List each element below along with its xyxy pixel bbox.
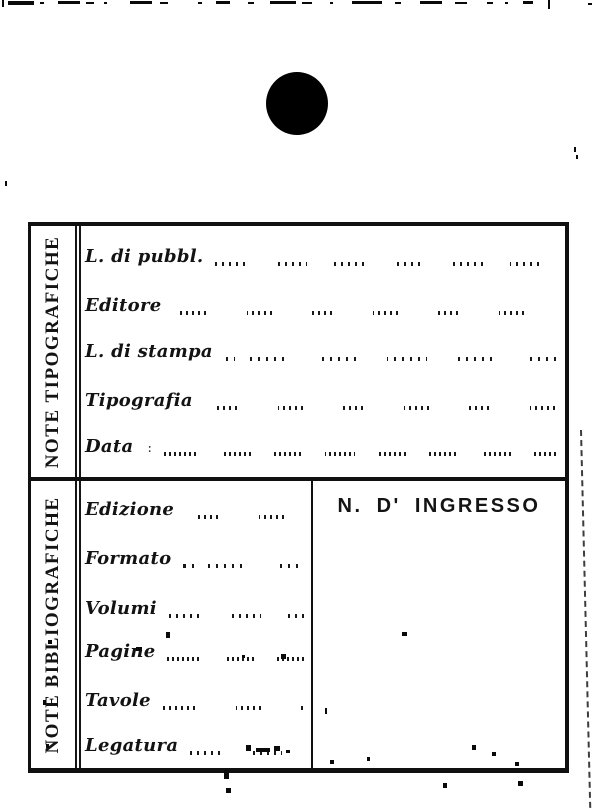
field-row-l-di-stampa: L. di stampa [85, 340, 557, 364]
field-label: L. di pubbl. [85, 245, 203, 269]
fill-in-dotted-line [164, 452, 557, 456]
section-note-bibliografiche: NOTE BIBLIOGRAFICHE Edizione Formato Vol… [31, 481, 565, 768]
scan-noise [576, 155, 578, 159]
field-row-legatura: Legatura [85, 734, 304, 758]
scan-noise [48, 640, 52, 644]
scan-noise [256, 748, 270, 752]
field-row-volumi: Volumi [85, 597, 304, 621]
section-side-label: NOTE BIBLIOGRAFICHE [42, 496, 64, 753]
scan-noise [281, 654, 286, 659]
scan-noise [248, 2, 254, 4]
field-label: Legatura [85, 734, 178, 758]
field-label: Tipografia [85, 389, 193, 413]
scan-noise [420, 1, 442, 4]
scan-noise [325, 708, 327, 714]
scan-noise [40, 2, 44, 4]
field-row-edizione: Edizione [85, 498, 304, 522]
fill-in-dotted-line [169, 614, 304, 618]
scan-noise [226, 788, 231, 793]
field-row-formato: Formato [85, 547, 304, 571]
scan-noise [302, 2, 312, 4]
scan-noise [367, 757, 370, 761]
fill-in-dotted-line [174, 311, 558, 315]
side-label-column: NOTE BIBLIOGRAFICHE [31, 481, 81, 768]
scan-noise [505, 2, 508, 4]
catalog-card: NOTE TIPOGRAFICHE L. di pubbl. Editore L… [28, 222, 569, 773]
scan-noise [518, 781, 523, 786]
punch-hole [266, 72, 328, 135]
scan-noise [270, 1, 296, 4]
ingress-panel: N. D' INGRESSO [313, 481, 565, 768]
field-label: L. di stampa [85, 340, 213, 364]
scan-noise [43, 700, 46, 705]
scan-noise [160, 2, 168, 4]
scan-noise [330, 2, 333, 4]
scan-noise [286, 750, 290, 753]
scan-noise [352, 1, 382, 4]
scan-noise [274, 746, 280, 751]
scan-noise [588, 3, 592, 5]
field-label: Editore [85, 294, 162, 318]
scan-noise [5, 181, 7, 186]
scan-artifact-line [580, 430, 591, 808]
field-label: Pagine [85, 640, 155, 664]
section-note-tipografiche: NOTE TIPOGRAFICHE L. di pubbl. Editore L… [31, 226, 565, 481]
scan-noise [86, 2, 94, 4]
fill-in-dotted-line [183, 564, 304, 568]
fill-in-dotted-line [163, 706, 304, 710]
field-row-l-di-pubbl: L. di pubbl. [85, 245, 557, 269]
fill-in-dotted-line [186, 515, 304, 519]
scan-noise [216, 1, 230, 4]
scan-noise [58, 1, 80, 4]
scan-noise [242, 655, 245, 658]
scan-noise [104, 2, 107, 4]
section-side-label: NOTE TIPOGRAFICHE [42, 235, 64, 468]
scan-noise [487, 2, 493, 4]
field-label: Volumi [85, 597, 157, 621]
scan-noise [198, 2, 202, 4]
scan-noise [395, 2, 401, 4]
scan-noise [548, 0, 550, 9]
side-label-column: NOTE TIPOGRAFICHE [31, 226, 81, 477]
scan-noise [166, 632, 170, 638]
field-row-pagine: Pagine [85, 640, 304, 664]
field-label: Edizione [85, 498, 174, 522]
fill-in-dotted-line [215, 262, 557, 266]
scan-noise [136, 647, 142, 651]
scan-noise [472, 745, 476, 750]
scan-noise [492, 752, 496, 756]
scan-noise [455, 2, 467, 4]
field-row-editore: Editore [85, 294, 557, 318]
scan-noise [130, 1, 152, 4]
scan-noise [8, 1, 34, 5]
fill-in-dotted-line [205, 406, 557, 410]
scan-noise [224, 770, 229, 779]
fill-in-dotted-line [225, 357, 557, 361]
scan-noise [574, 147, 576, 152]
scan-noise [443, 783, 447, 788]
scan-noise [523, 1, 533, 4]
field-separator: : [147, 437, 151, 461]
scan-noise [246, 745, 251, 751]
scan-noise [515, 762, 519, 766]
field-label: Tavole [85, 689, 151, 713]
scan-noise [2, 0, 4, 7]
scan-noise [402, 632, 407, 636]
field-row-data: Data : [85, 435, 557, 459]
ingress-panel-title: N. D' INGRESSO [313, 495, 565, 518]
scan-noise [330, 760, 334, 764]
field-label: Data [85, 435, 133, 459]
field-row-tavole: Tavole [85, 689, 304, 713]
scan-noise [46, 744, 49, 748]
field-label: Formato [85, 547, 171, 571]
field-row-tipografia: Tipografia [85, 389, 557, 413]
